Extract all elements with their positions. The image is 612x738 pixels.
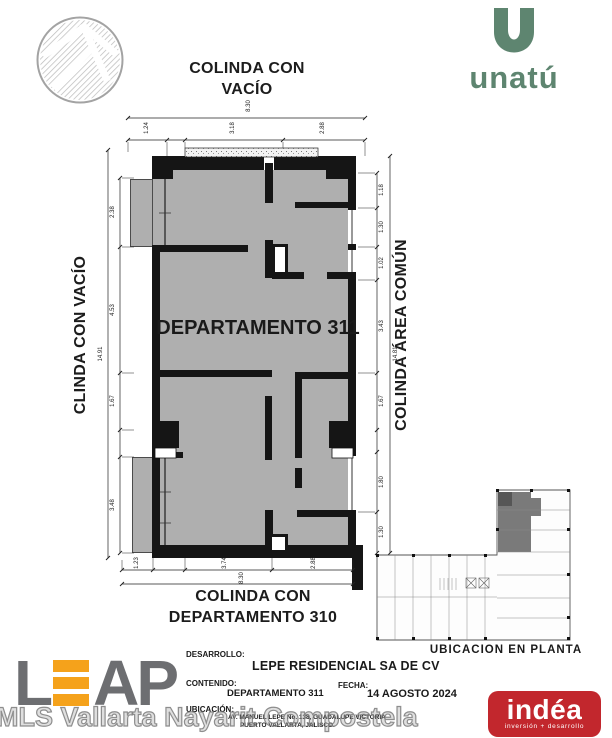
dim-top-overall: 8.30 xyxy=(246,100,252,112)
indea-logo: indéa inversión + desarrollo xyxy=(488,691,601,737)
dim-right-6: 1.80 xyxy=(379,476,385,488)
dim-left-2: 4.53 xyxy=(110,304,116,316)
dim-left-1: 2.38 xyxy=(110,206,116,218)
indea-wordmark: indéa xyxy=(488,695,601,725)
desarrollo-label: DESARROLLO: xyxy=(186,650,245,659)
dim-right-2: 1.30 xyxy=(379,221,385,233)
room-label: DEPARTAMENTO 311 xyxy=(156,317,359,339)
contenido-label: CONTENIDO: xyxy=(186,679,237,688)
leap-letter-e-bars-icon xyxy=(53,660,89,706)
dim-right-7: 1.30 xyxy=(379,526,385,538)
contenido-value: DEPARTAMENTO 311 xyxy=(227,688,324,699)
dim-right-1: 1.18 xyxy=(379,184,385,196)
dim-left-3: 1.67 xyxy=(110,395,116,407)
fecha-label: FECHA: xyxy=(338,681,368,690)
dim-top-2: 3.18 xyxy=(230,122,236,134)
floor-fill xyxy=(130,163,355,553)
mls-watermark-text: MLS Vallarta Nayarit Compostela xyxy=(0,702,418,733)
top-terrace-strip xyxy=(185,148,318,157)
dim-right-5: 1.67 xyxy=(379,395,385,407)
colinda-bottom-line1: COLINDA CON xyxy=(150,586,356,607)
dim-bottom-2: 3.74 xyxy=(222,557,228,569)
colinda-bottom-label: COLINDA CON DEPARTAMENTO 310 xyxy=(150,586,356,628)
colinda-bottom-line2: DEPARTAMENTO 310 xyxy=(150,607,356,628)
fecha-value: 14 AGOSTO 2024 xyxy=(367,688,457,700)
dim-bottom-3: 2.88 xyxy=(311,557,317,569)
floorplan-sheet: COLINDA CON VACÍO unatú CLINDA CON VACÍO… xyxy=(0,0,612,738)
mini-plan-caption: UBICACION EN PLANTA xyxy=(430,644,582,656)
dim-right-4: 3.43 xyxy=(379,320,385,332)
dim-bottom-overall: 8.30 xyxy=(239,572,245,584)
dim-left-4: 3.48 xyxy=(110,499,116,511)
desarrollo-value: LEPE RESIDENCIAL SA DE CV xyxy=(252,659,440,673)
mini-site-plan: UBICACION EN PLANTA xyxy=(376,489,582,656)
indea-tagline: inversión + desarrollo xyxy=(488,723,601,730)
dim-top-1: 1.24 xyxy=(144,122,150,134)
dim-right-3: 1.02 xyxy=(379,257,385,269)
dim-right-overall: 14.81 xyxy=(393,346,399,362)
dim-bottom-1: 1.23 xyxy=(134,557,140,569)
dim-top-3: 2.88 xyxy=(320,122,326,134)
dim-left-overall: 14.91 xyxy=(98,346,104,362)
